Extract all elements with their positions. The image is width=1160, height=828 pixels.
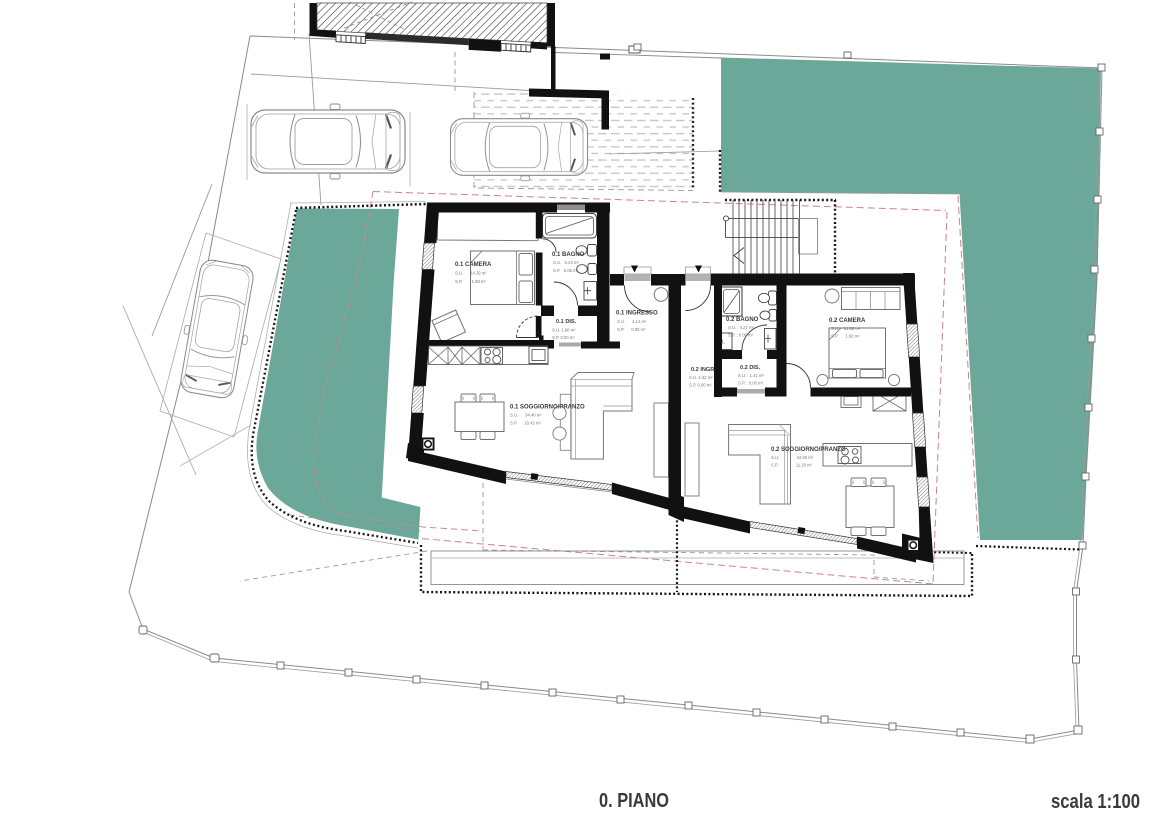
svg-text:S.U. 1.90 m²: S.U. 1.90 m² bbox=[552, 328, 576, 333]
svg-text:S.U. 14.39 m²: S.U. 14.39 m² bbox=[455, 271, 487, 276]
svg-text:0.2 INGR.: 0.2 INGR. bbox=[691, 367, 716, 373]
svg-text:S.U. 4.32 m²: S.U. 4.32 m² bbox=[689, 375, 713, 380]
svg-text:S.P. 11.20 m²: S.P. 11.20 m² bbox=[771, 463, 813, 468]
svg-text:0. PIANO: 0. PIANO bbox=[599, 790, 669, 812]
svg-text:S.P. : 0.00 m²: S.P. : 0.00 m² bbox=[728, 333, 754, 338]
svg-text:0.1 DIS.: 0.1 DIS. bbox=[556, 319, 577, 325]
svg-text:0.1 INGRESSO: 0.1 INGRESSO bbox=[616, 311, 658, 317]
svg-text:S.P. 0.00 m²: S.P. 0.00 m² bbox=[552, 335, 575, 340]
svg-text:scala 1:100: scala 1:100 bbox=[1051, 791, 1140, 813]
svg-text:S.P. 0.00 m²: S.P. 0.00 m² bbox=[617, 327, 646, 332]
svg-text:S.U. 4.14 m²: S.U. 4.14 m² bbox=[617, 319, 647, 324]
svg-text:S.U. 5.43 m²: S.U. 5.43 m² bbox=[553, 260, 579, 265]
svg-text:0.2 DIS.: 0.2 DIS. bbox=[740, 365, 761, 371]
svg-text:0.1 BAGNO: 0.1 BAGNO bbox=[552, 252, 585, 258]
svg-text:0.2 BAGNO: 0.2 BAGNO bbox=[726, 317, 759, 323]
svg-text:S.P. 1.92 m²: S.P. 1.92 m² bbox=[831, 334, 860, 339]
svg-text:S.U. : 1.41 m²: S.U. : 1.41 m² bbox=[738, 373, 764, 378]
svg-text:S.U. 34.58 m²: S.U. 34.58 m² bbox=[771, 455, 814, 460]
svg-text:S.P. 10.42 m²: S.P. 10.42 m² bbox=[510, 421, 541, 426]
svg-text:S.U. : 4.27 m²: S.U. : 4.27 m² bbox=[728, 325, 754, 330]
svg-text:S.P. 5.05 m²: S.P. 5.05 m² bbox=[553, 268, 579, 273]
svg-text:S.P. 0.00 m²: S.P. 0.00 m² bbox=[689, 383, 712, 388]
svg-text:S.U. 14.88 m²: S.U. 14.88 m² bbox=[831, 326, 861, 331]
svg-text:0.2 SOGGIORNO/PRANZO: 0.2 SOGGIORNO/PRANZO bbox=[771, 447, 846, 453]
svg-text:S.U. 34.40 m²: S.U. 34.40 m² bbox=[510, 413, 542, 418]
svg-text:S.P. : 0.00 m²: S.P. : 0.00 m² bbox=[738, 381, 764, 386]
svg-text:0.2 CAMERA: 0.2 CAMERA bbox=[829, 318, 866, 324]
svg-text:S.P. 1.98 m²: S.P. 1.98 m² bbox=[455, 279, 486, 284]
svg-text:0.1 CAMERA: 0.1 CAMERA bbox=[455, 262, 492, 268]
svg-text:0.1 SOGGIORNO/PRANZO: 0.1 SOGGIORNO/PRANZO bbox=[510, 405, 585, 411]
